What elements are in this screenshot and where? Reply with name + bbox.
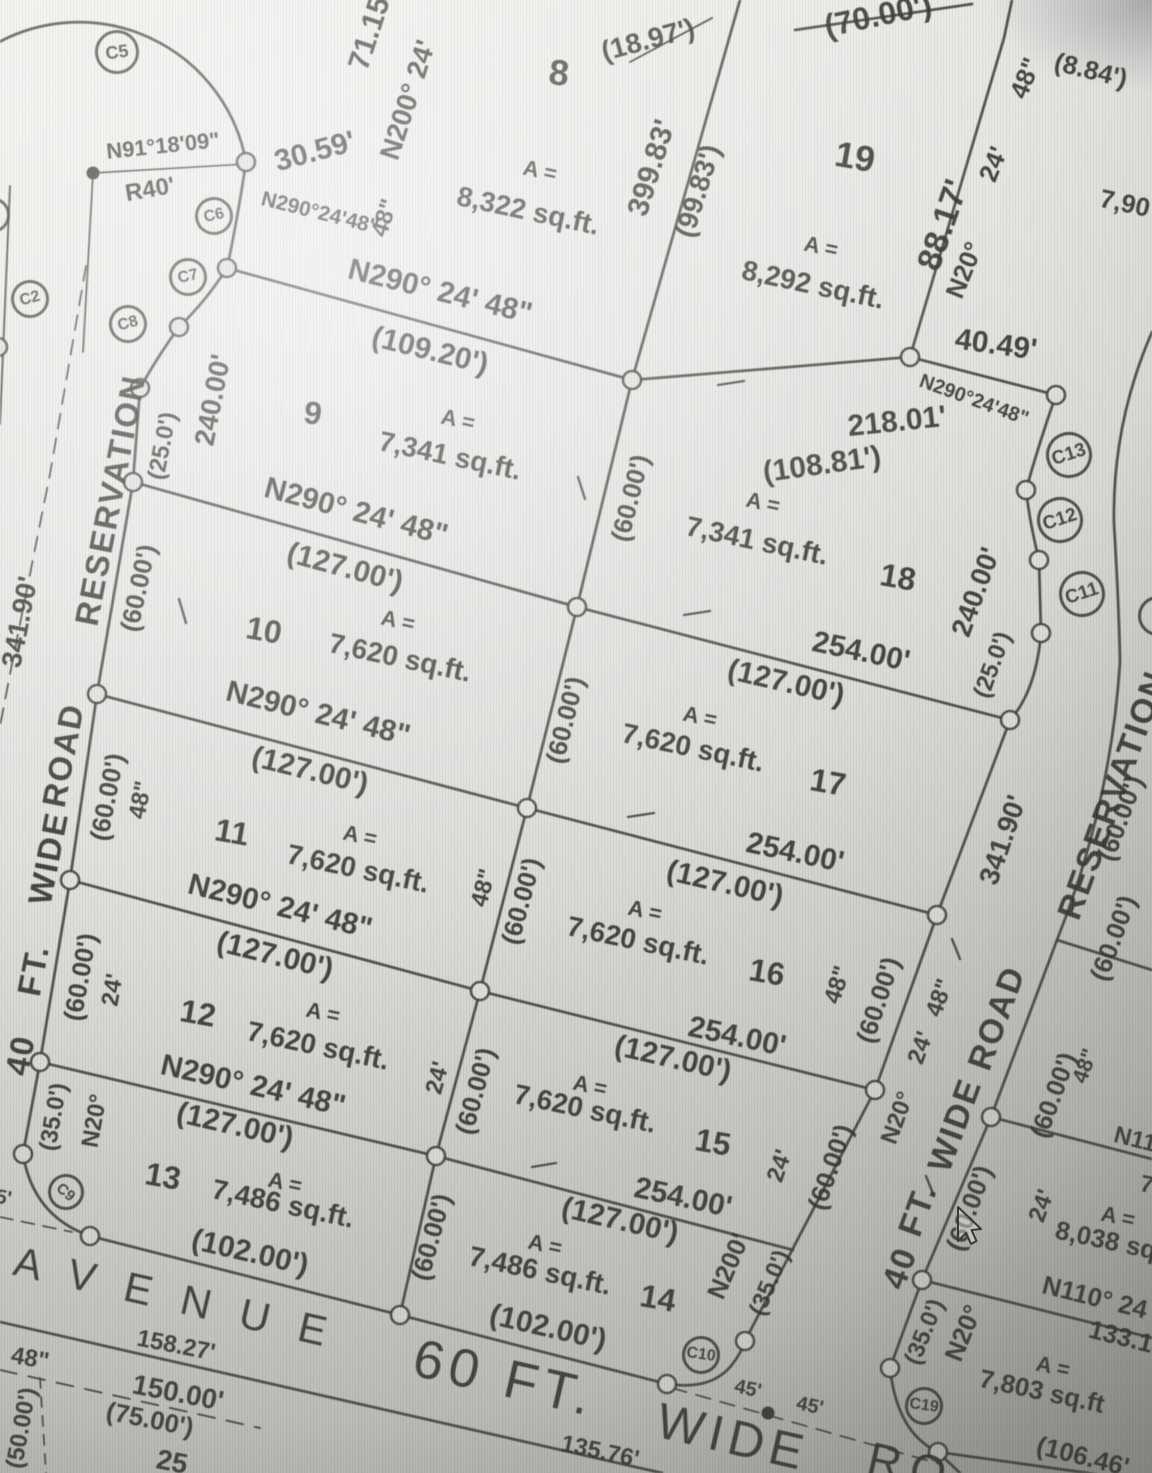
survey-point-dot <box>87 167 100 180</box>
survey-node <box>881 1359 899 1377</box>
map-label: 8 <box>547 54 571 92</box>
survey-node <box>427 1147 445 1165</box>
survey-node <box>1032 624 1050 642</box>
survey-node <box>866 1081 884 1099</box>
survey-node <box>623 371 641 389</box>
survey-node <box>14 1145 32 1163</box>
plat-map-photo: N91°18'09"R40'30.59'N290°24'48"71.15'N20… <box>0 0 1152 1473</box>
survey-node <box>0 338 7 356</box>
survey-node <box>658 1375 676 1393</box>
survey-node <box>81 1227 99 1245</box>
survey-node <box>237 153 255 171</box>
map-label: FT. <box>12 941 54 998</box>
survey-node <box>391 1306 409 1324</box>
map-label: 15 <box>693 1123 734 1161</box>
line-218 <box>632 357 910 380</box>
map-label: 19 <box>832 136 878 178</box>
survey-node <box>218 259 236 277</box>
map-label: 12 <box>178 994 219 1032</box>
map-label: 14 <box>638 1279 679 1317</box>
survey-node <box>568 598 586 616</box>
map-label: 40 <box>0 1032 40 1078</box>
map-label: 17 <box>808 763 849 801</box>
map-label: 25 <box>154 1445 190 1473</box>
survey-node <box>1017 481 1035 499</box>
survey-node <box>901 348 919 366</box>
survey-node <box>982 1108 1000 1126</box>
map-label: 24' <box>98 972 127 1008</box>
map-label: 18 <box>878 558 919 596</box>
survey-node <box>471 982 489 1000</box>
map-label: 16 <box>747 953 788 991</box>
survey-node <box>928 906 946 924</box>
map-photo-layer: N91°18'09"R40'30.59'N290°24'48"71.15'N20… <box>0 0 1152 1473</box>
survey-node <box>1001 711 1019 729</box>
survey-node <box>170 318 188 336</box>
survey-node <box>88 685 106 703</box>
map-label: 45' <box>733 1376 764 1401</box>
map-label: 13 <box>143 1157 184 1195</box>
map-label: 11 <box>213 813 252 850</box>
map-label: 48" <box>9 1344 51 1374</box>
survey-node <box>736 1332 754 1350</box>
lot17-18-line <box>577 607 1010 720</box>
dashed-bottom-left-3 <box>0 1217 72 1232</box>
map-label: 45' <box>795 1393 826 1418</box>
survey-node <box>1030 551 1048 569</box>
map-label: 10 <box>244 611 285 649</box>
survey-node <box>518 799 536 817</box>
survey-node <box>1047 386 1065 404</box>
